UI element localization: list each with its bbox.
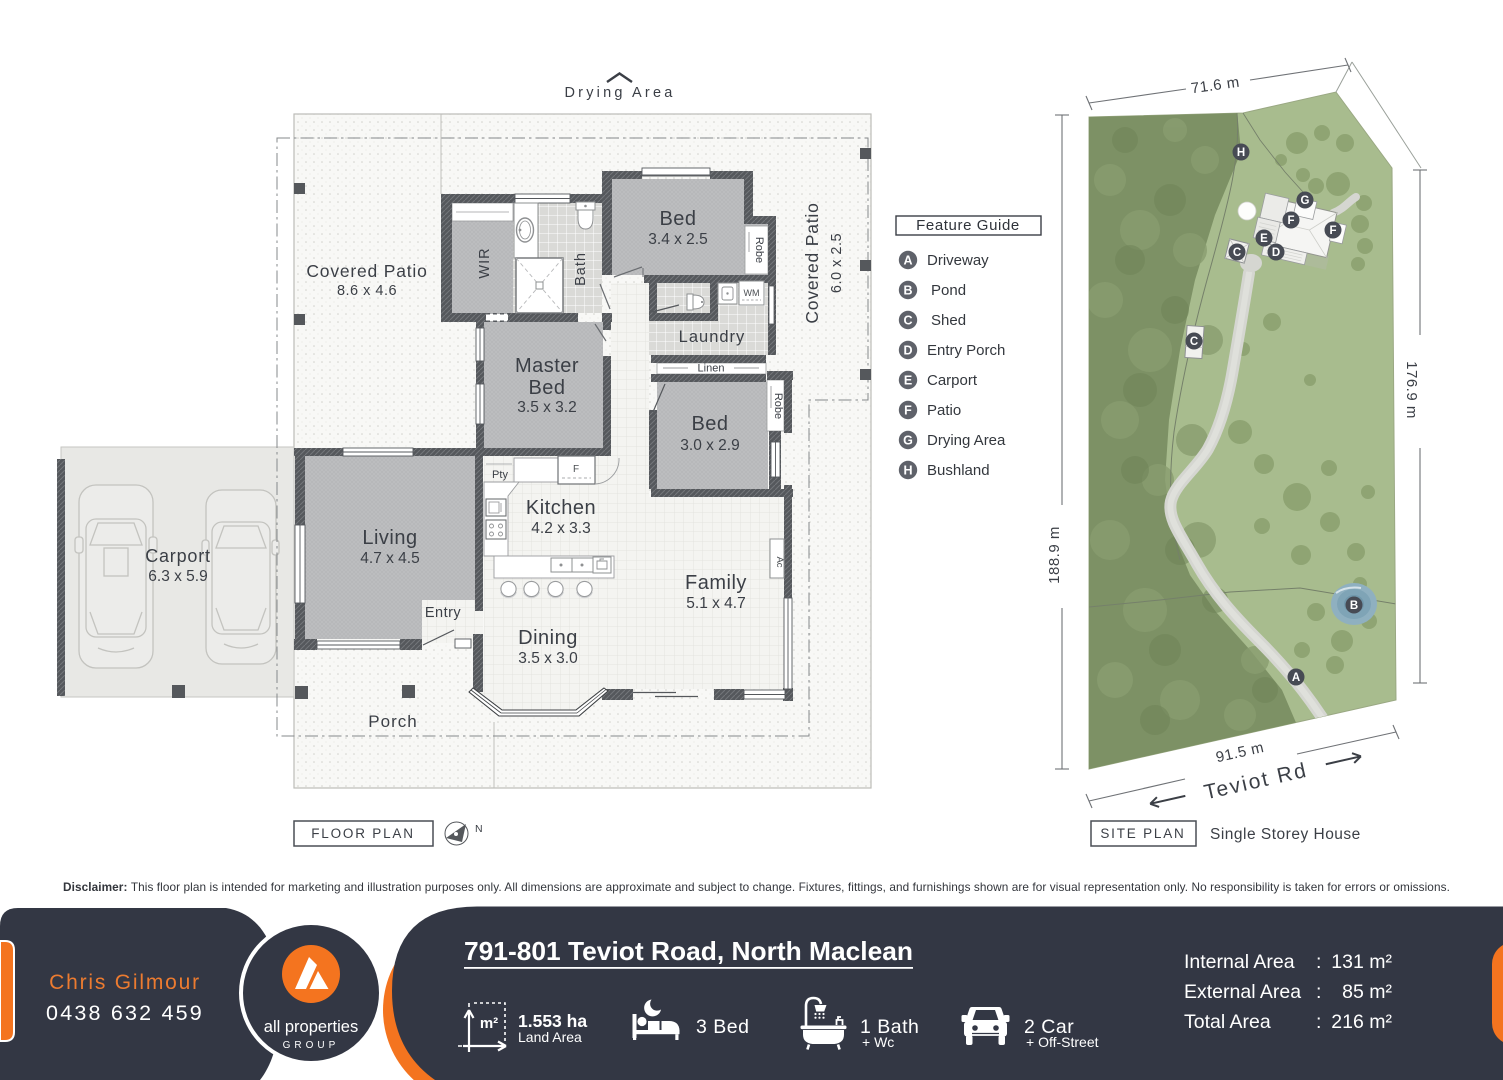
svg-text:Dining: Dining [518,627,578,649]
svg-text:Laundry: Laundry [679,328,746,346]
svg-text:Entry Porch: Entry Porch [927,342,1005,359]
svg-text:3.5 x 3.0: 3.5 x 3.0 [518,650,578,667]
svg-text:Drying Area: Drying Area [565,85,676,101]
svg-text:B: B [1350,600,1358,612]
svg-text:Driveway: Driveway [927,252,989,269]
svg-text:Pty: Pty [492,469,508,481]
svg-text::: : [1316,1011,1321,1033]
svg-text:Internal Area: Internal Area [1184,951,1295,973]
svg-text:E: E [1260,233,1268,245]
svg-text:Linen: Linen [698,363,725,375]
svg-text:Carport: Carport [927,372,978,389]
svg-text:Family: Family [685,572,747,594]
svg-text:791-801 Teviot Road, North Mac: 791-801 Teviot Road, North Maclean [464,936,913,966]
svg-text:Living: Living [362,527,417,549]
svg-text:all properties: all properties [264,1018,358,1036]
svg-text:FLOOR PLAN: FLOOR PLAN [311,826,415,841]
svg-text:Patio: Patio [927,402,961,419]
svg-text:F: F [904,404,912,418]
svg-text:Bath: Bath [573,252,589,286]
svg-text::: : [1316,951,1321,973]
svg-text:SITE PLAN: SITE PLAN [1100,826,1185,841]
svg-text:m²: m² [480,1015,498,1032]
svg-text:Porch: Porch [368,712,417,731]
svg-text:G: G [1301,195,1310,207]
svg-text:5.1 x 4.7: 5.1 x 4.7 [686,595,745,612]
svg-text:Covered Patio: Covered Patio [802,202,822,323]
svg-text:Disclaimer: This floor plan is: Disclaimer: This floor plan is intended … [63,880,1450,894]
svg-text:Bed: Bed [659,208,696,230]
svg-text:85 m²: 85 m² [1342,981,1392,1003]
svg-text:External Area: External Area [1184,981,1301,1003]
svg-text:WIR: WIR [477,247,493,278]
svg-text:F: F [1329,225,1336,237]
svg-text:Pond: Pond [931,282,966,299]
svg-text:Bushland: Bushland [927,462,990,479]
svg-text:B: B [903,284,912,298]
svg-text:Land Area: Land Area [518,1029,582,1045]
svg-text:N: N [475,823,483,835]
svg-text:216 m²: 216 m² [1331,1011,1392,1033]
svg-text:6.0 x 2.5: 6.0 x 2.5 [829,233,845,293]
svg-text:188.9 m: 188.9 m [1046,526,1063,584]
svg-text:F: F [573,464,579,475]
svg-text:Bed: Bed [691,413,728,435]
svg-text:Entry: Entry [425,605,462,621]
svg-text:WM: WM [744,288,760,298]
svg-text:6.3 x 5.9: 6.3 x 5.9 [148,568,207,585]
svg-text:4.7 x 4.5: 4.7 x 4.5 [360,550,419,567]
svg-text:3 Bed: 3 Bed [696,1016,749,1038]
svg-text:C: C [903,314,912,328]
svg-text:G: G [903,434,913,448]
svg-text:C: C [1233,247,1241,259]
svg-text:Ac: Ac [774,556,785,567]
svg-text:A: A [903,254,912,268]
svg-text:1.553 ha: 1.553 ha [518,1011,587,1031]
svg-text:F: F [1287,215,1294,227]
svg-text:Chris Gilmour: Chris Gilmour [49,971,201,994]
svg-text:+ Wc: + Wc [862,1034,894,1050]
svg-text:Robe: Robe [772,393,784,419]
svg-text:131 m²: 131 m² [1331,951,1392,973]
svg-text:3.4 x 2.5: 3.4 x 2.5 [648,231,707,248]
svg-text:Shed: Shed [931,312,966,329]
svg-text:3.5 x 3.2: 3.5 x 3.2 [517,399,576,416]
svg-text:0438 632 459: 0438 632 459 [46,1001,204,1025]
svg-text:71.6 m: 71.6 m [1190,74,1241,98]
svg-text:Kitchen: Kitchen [526,497,596,519]
svg-text:Robe: Robe [753,237,765,263]
svg-text:GROUP: GROUP [283,1040,340,1051]
svg-text:8.6 x 4.6: 8.6 x 4.6 [337,283,397,299]
svg-text:H: H [903,464,912,478]
svg-text:Covered Patio: Covered Patio [306,261,427,281]
svg-text:Drying Area: Drying Area [927,432,1006,449]
svg-text:C: C [1190,336,1198,348]
svg-text:176.9 m: 176.9 m [1403,361,1420,419]
svg-text:H: H [1237,147,1245,159]
svg-text:Master: Master [515,355,579,377]
svg-text:4.2 x 3.3: 4.2 x 3.3 [531,520,590,537]
svg-text:Carport: Carport [145,546,211,566]
svg-text:D: D [903,344,912,358]
svg-text:D: D [1272,247,1280,259]
svg-text:91.5 m: 91.5 m [1214,739,1265,766]
svg-text::: : [1316,981,1321,1003]
svg-text:Bed: Bed [528,377,565,399]
svg-text:Single Storey House: Single Storey House [1210,826,1361,843]
svg-text:3.0 x 2.9: 3.0 x 2.9 [680,437,739,454]
svg-text:E: E [904,374,912,388]
svg-text:A: A [1292,672,1300,684]
svg-text:Feature Guide: Feature Guide [916,217,1020,234]
svg-text:+ Off-Street: + Off-Street [1026,1034,1099,1050]
svg-text:Total Area: Total Area [1184,1011,1271,1033]
